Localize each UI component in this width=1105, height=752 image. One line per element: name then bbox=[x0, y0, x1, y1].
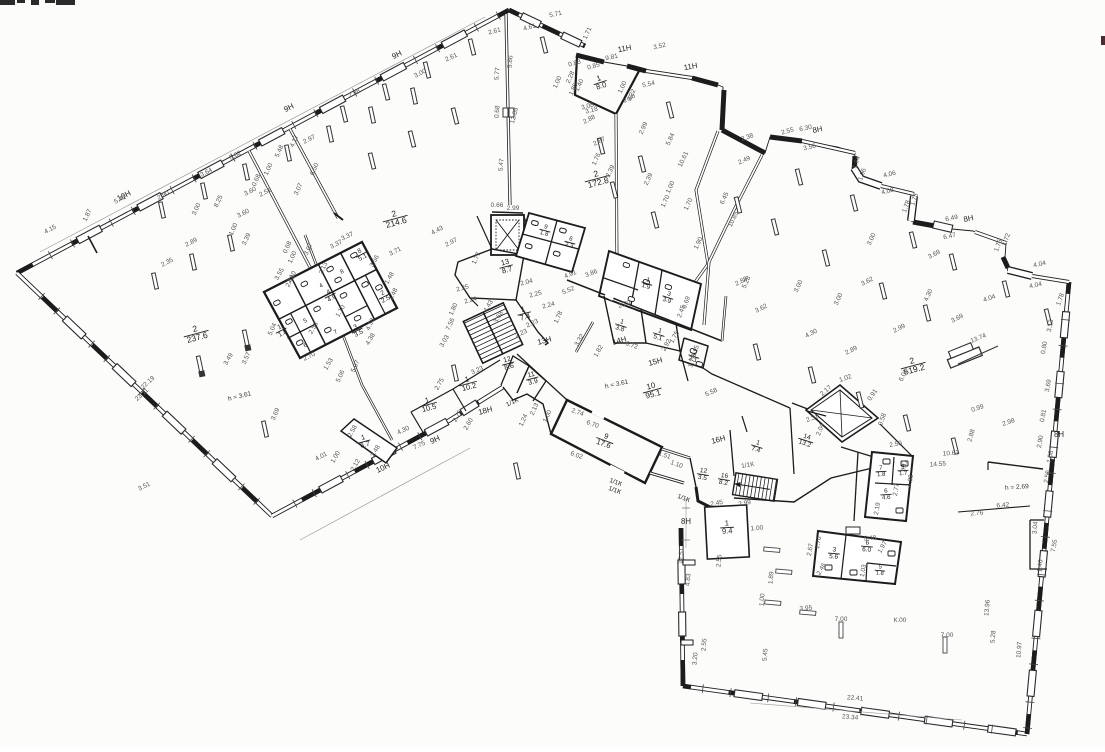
svg-text:5.77: 5.77 bbox=[493, 67, 501, 81]
svg-text:0.66: 0.66 bbox=[491, 202, 504, 209]
svg-text:2.55: 2.55 bbox=[700, 638, 708, 652]
svg-text:8Н: 8Н bbox=[681, 517, 691, 526]
svg-text:12.51: 12.51 bbox=[677, 547, 685, 564]
svg-text:1.89: 1.89 bbox=[767, 571, 775, 585]
svg-text:4.6: 4.6 bbox=[882, 494, 892, 501]
svg-text:8.2: 8.2 bbox=[718, 479, 728, 487]
svg-text:4.83: 4.83 bbox=[684, 573, 692, 587]
svg-text:3.04: 3.04 bbox=[1031, 521, 1039, 535]
svg-text:13.96: 13.96 bbox=[983, 599, 991, 616]
svg-text:1.00: 1.00 bbox=[750, 525, 763, 533]
svg-text:5.48: 5.48 bbox=[863, 535, 876, 543]
svg-text:14.55: 14.55 bbox=[930, 460, 947, 468]
svg-text:3.95: 3.95 bbox=[799, 605, 812, 613]
svg-text:2.99: 2.99 bbox=[507, 205, 520, 212]
svg-text:5.47: 5.47 bbox=[497, 158, 505, 172]
svg-text:23.34: 23.34 bbox=[842, 713, 859, 721]
svg-text:7.00: 7.00 bbox=[835, 616, 848, 623]
svg-text:5: 5 bbox=[878, 564, 882, 570]
svg-text:1.8: 1.8 bbox=[875, 570, 884, 577]
svg-text:2.55: 2.55 bbox=[715, 554, 723, 568]
svg-text:10.63: 10.63 bbox=[943, 449, 960, 457]
svg-text:1.46: 1.46 bbox=[1036, 559, 1044, 573]
svg-text:3.5: 3.5 bbox=[697, 474, 707, 482]
svg-text:8Н: 8Н bbox=[1054, 430, 1064, 439]
svg-text:9.4: 9.4 bbox=[722, 526, 733, 536]
svg-text:7.00: 7.00 bbox=[941, 632, 954, 639]
svg-text:5.28: 5.28 bbox=[989, 630, 997, 644]
svg-text:22.41: 22.41 bbox=[847, 694, 864, 702]
svg-text:5.86: 5.86 bbox=[506, 55, 514, 69]
svg-text:1.00: 1.00 bbox=[758, 593, 766, 607]
svg-text:3.20: 3.20 bbox=[691, 652, 699, 666]
svg-text:6.0: 6.0 bbox=[862, 546, 872, 554]
svg-text:0.68: 0.68 bbox=[493, 105, 501, 119]
svg-text:5.6: 5.6 bbox=[829, 553, 839, 561]
svg-text:К.00: К.00 bbox=[894, 617, 907, 624]
svg-text:1.8: 1.8 bbox=[877, 472, 886, 478]
svg-text:5.45: 5.45 bbox=[761, 648, 769, 662]
svg-text:6.42: 6.42 bbox=[996, 502, 1009, 510]
svg-text:2.76: 2.76 bbox=[970, 510, 983, 518]
svg-text:10.97: 10.97 bbox=[1015, 641, 1023, 658]
